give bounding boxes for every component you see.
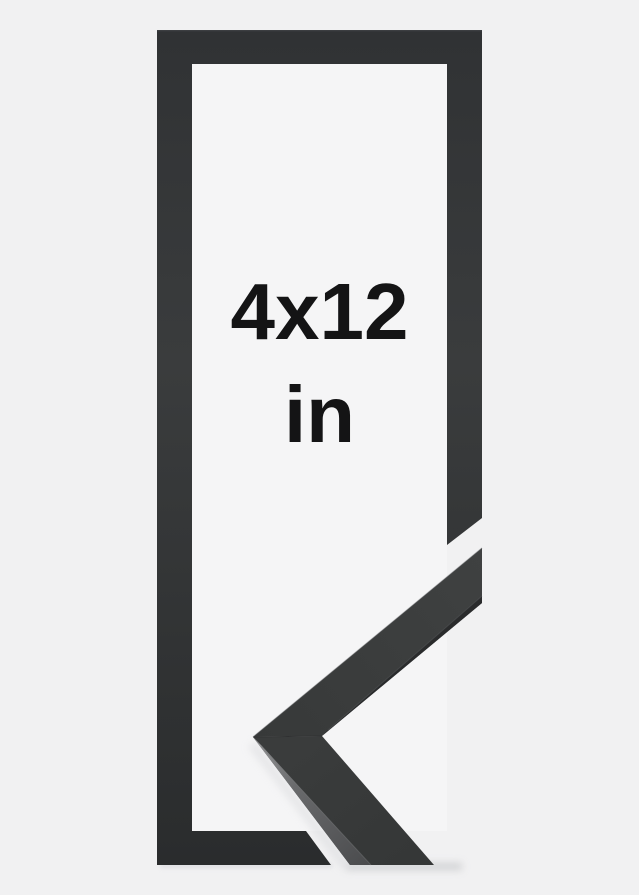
- product-photo: 4x12 in: [0, 0, 639, 895]
- size-dimensions-text: 4x12: [192, 260, 447, 363]
- size-unit-text: in: [192, 363, 447, 466]
- size-label: 4x12 in: [192, 260, 447, 466]
